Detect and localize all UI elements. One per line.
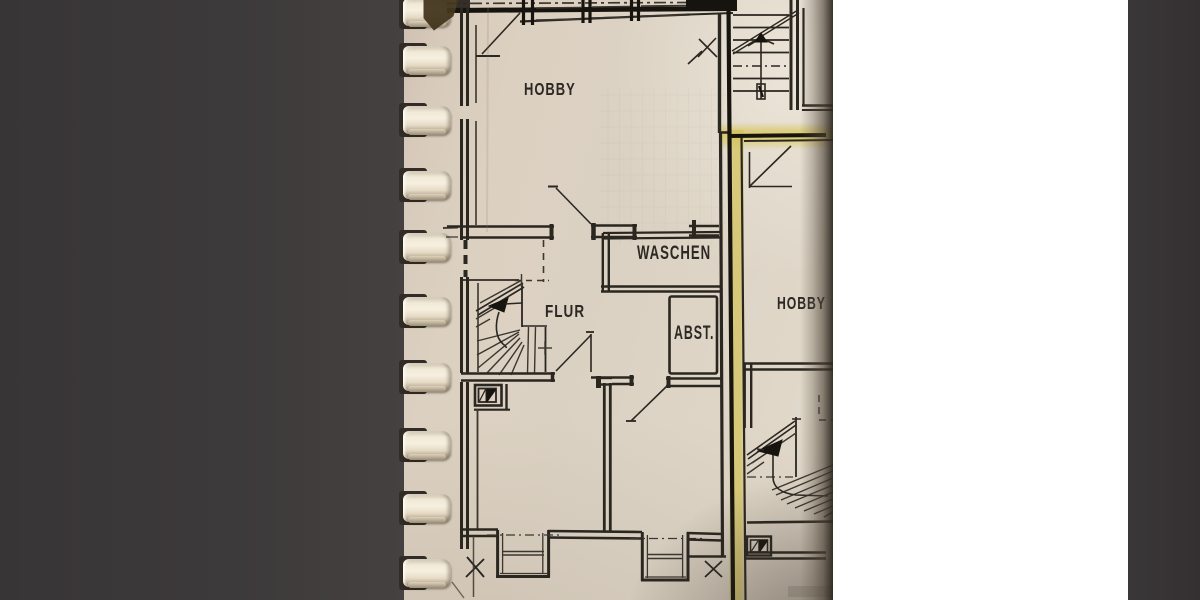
svg-text:HOBBY: HOBBY bbox=[524, 80, 576, 100]
svg-text:FLUR: FLUR bbox=[545, 302, 585, 321]
svg-text:ABST.: ABST. bbox=[674, 322, 714, 343]
